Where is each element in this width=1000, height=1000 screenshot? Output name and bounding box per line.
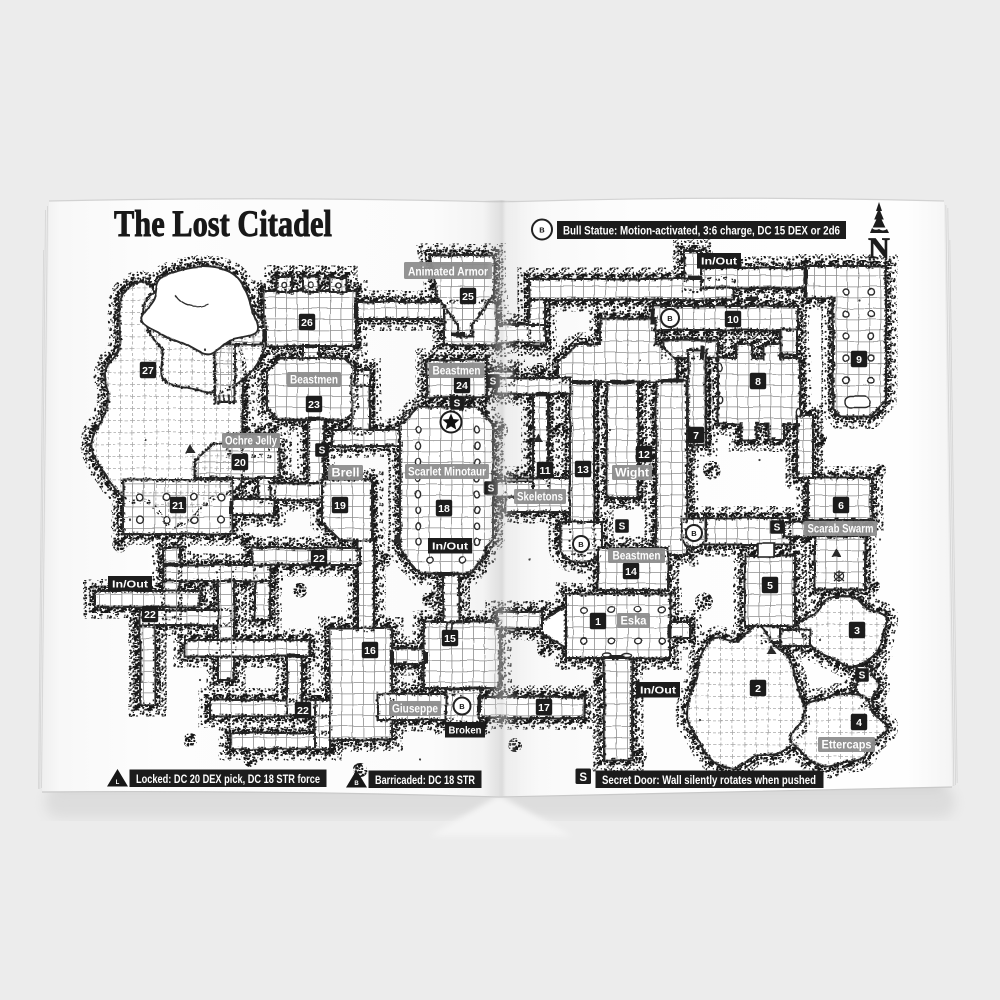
- svg-text:In/Out: In/Out: [640, 685, 677, 697]
- svg-text:16: 16: [364, 645, 376, 657]
- svg-text:12: 12: [638, 449, 650, 461]
- svg-text:Beastmen: Beastmen: [290, 373, 338, 387]
- svg-text:14: 14: [625, 566, 637, 578]
- svg-text:7: 7: [693, 430, 699, 442]
- svg-text:1: 1: [595, 616, 601, 628]
- svg-text:2: 2: [755, 683, 761, 695]
- svg-text:In/Out: In/Out: [432, 541, 469, 553]
- svg-text:B: B: [667, 314, 673, 323]
- svg-text:17: 17: [538, 702, 550, 714]
- svg-text:B: B: [354, 781, 359, 787]
- svg-text:Ochre Jelly: Ochre Jelly: [225, 434, 277, 448]
- svg-text:Beastmen: Beastmen: [613, 549, 661, 563]
- svg-text:S: S: [579, 772, 587, 784]
- svg-text:Bull Statue: Motion-activated,: Bull Statue: Motion-activated, 3:6 charg…: [563, 224, 840, 238]
- svg-text:In/Out: In/Out: [701, 256, 738, 268]
- svg-text:10: 10: [727, 314, 739, 326]
- svg-text:B: B: [578, 540, 584, 549]
- svg-text:Locked: DC 20 DEX pick, DC 18: Locked: DC 20 DEX pick, DC 18 STR force: [136, 772, 320, 786]
- svg-text:13: 13: [577, 464, 589, 476]
- svg-text:19: 19: [334, 500, 346, 512]
- svg-text:27: 27: [142, 365, 154, 377]
- svg-text:Brell: Brell: [332, 466, 360, 480]
- svg-text:26: 26: [301, 317, 313, 329]
- svg-text:S: S: [619, 522, 626, 533]
- svg-text:Ettercaps: Ettercaps: [822, 738, 872, 752]
- svg-text:L: L: [116, 780, 120, 786]
- svg-text:18: 18: [438, 503, 450, 515]
- svg-text:25: 25: [462, 291, 474, 303]
- svg-text:9: 9: [856, 354, 862, 366]
- svg-text:Beastmen: Beastmen: [433, 364, 481, 378]
- svg-text:22: 22: [297, 705, 309, 717]
- svg-text:Broken: Broken: [449, 725, 482, 737]
- svg-text:24: 24: [456, 380, 468, 392]
- svg-text:23: 23: [308, 399, 320, 411]
- svg-text:15: 15: [444, 633, 456, 645]
- svg-text:6: 6: [838, 500, 844, 512]
- svg-text:S: S: [319, 446, 326, 457]
- svg-text:Giuseppe: Giuseppe: [392, 702, 438, 716]
- svg-text:Eska: Eska: [621, 614, 647, 628]
- svg-text:B: B: [691, 529, 697, 538]
- svg-text:22: 22: [313, 553, 325, 565]
- svg-text:21: 21: [172, 500, 184, 512]
- svg-text:Animated Armor: Animated Armor: [408, 265, 488, 279]
- svg-text:5: 5: [767, 580, 773, 592]
- svg-text:S: S: [859, 671, 866, 682]
- svg-text:S: S: [454, 399, 461, 410]
- svg-text:Barricaded: DC 18 STR: Barricaded: DC 18 STR: [375, 773, 475, 787]
- svg-text:20: 20: [234, 457, 246, 469]
- svg-text:B: B: [539, 225, 545, 234]
- svg-text:4: 4: [856, 717, 862, 729]
- svg-text:Scarlet Minotaur: Scarlet Minotaur: [408, 465, 486, 479]
- svg-text:Skeletons: Skeletons: [517, 490, 563, 504]
- svg-text:11: 11: [539, 465, 550, 477]
- svg-text:The Lost Citadel: The Lost Citadel: [114, 204, 332, 245]
- svg-text:22: 22: [144, 609, 156, 621]
- svg-text:Wight: Wight: [615, 466, 649, 480]
- svg-text:S: S: [774, 523, 781, 534]
- svg-text:In/Out: In/Out: [112, 579, 149, 591]
- svg-text:Secret Door: Wall silently rot: Secret Door: Wall silently rotates when …: [602, 773, 816, 787]
- svg-text:8: 8: [755, 376, 761, 388]
- svg-text:B: B: [459, 702, 465, 711]
- svg-text:3: 3: [854, 625, 860, 637]
- svg-text:Scarab Swarm: Scarab Swarm: [808, 522, 874, 536]
- svg-text:N: N: [868, 232, 890, 265]
